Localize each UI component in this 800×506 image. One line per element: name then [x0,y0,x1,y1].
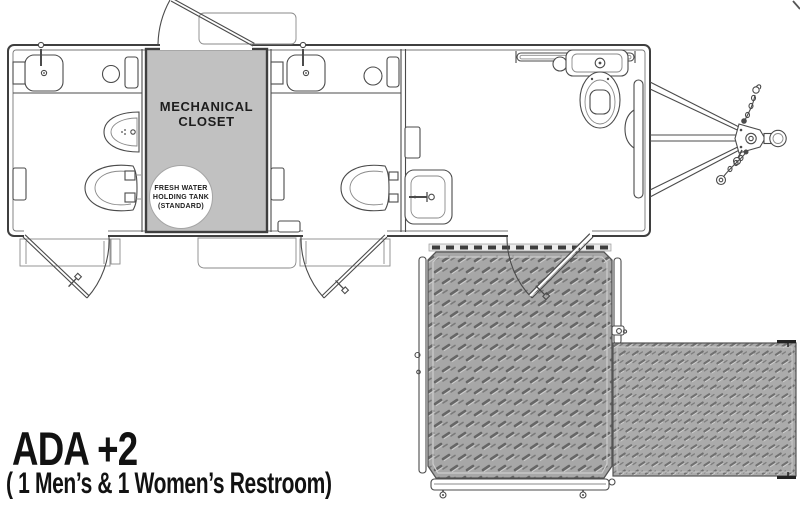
faucet-icon [300,42,305,47]
trailer-tongue [650,82,786,197]
waste-bin [103,66,120,83]
ada-sink [405,170,452,224]
women-entry-door [300,230,390,298]
safety-chain-top [741,85,760,124]
floor-vent [278,221,300,232]
wall-dispenser [13,168,26,200]
platform-right-rail [612,258,627,344]
floor-plan-canvas: MECHANICAL CLOSET FRESH WATER HOLDING TA… [0,0,800,506]
door-swing-arc [87,237,109,298]
mechanical-closet-access-door [158,0,296,50]
fresh-water-tank-label: FRESH WATER HOLDING TANK (STANDARD) [150,184,212,212]
hitch-ball-icon [770,130,786,146]
ada-platform [415,244,627,498]
mechanical-closet-label: MECHANICAL CLOSET [146,99,267,130]
door-swing-arc [301,237,324,298]
plan-subtitle: ( 1 Men’s & 1 Women’s Restroom) [6,467,332,501]
waste-bin [364,67,382,85]
faucet-icon [38,42,43,47]
men-entry-door [20,230,120,298]
door-swing-arc [158,0,170,44]
corner-mark [793,1,800,9]
shelf [387,57,399,87]
coupler [735,124,786,153]
wall-dispenser [271,168,284,200]
ramp-foot [609,479,615,485]
shelf [125,57,138,88]
fold-down-step [198,238,296,268]
platform-left-rail [415,257,426,473]
ada-ramp [609,341,796,485]
wall-dispenser [13,62,25,84]
platform-bottom-edge [431,479,609,498]
toilet [85,165,141,210]
wall-shelf [405,127,420,158]
wall-dispenser [271,62,283,84]
